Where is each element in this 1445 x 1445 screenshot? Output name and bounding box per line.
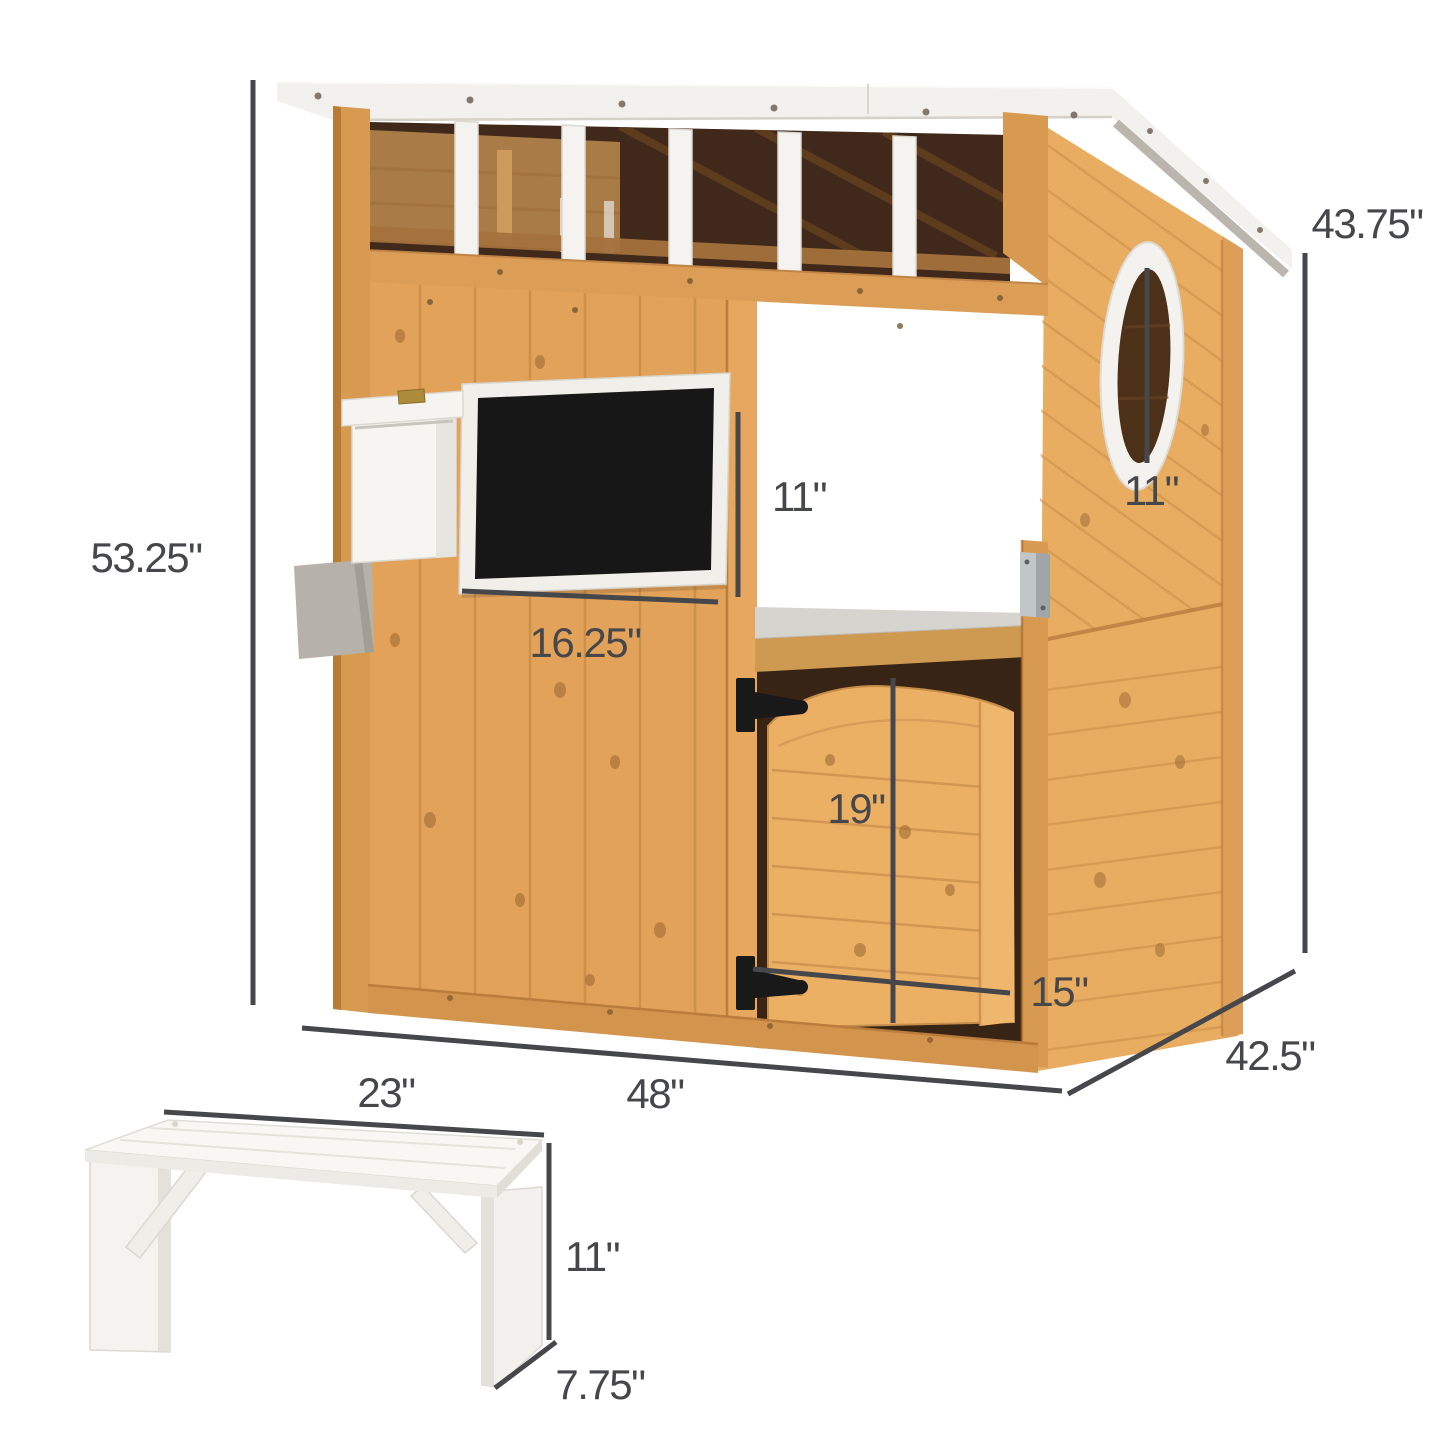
dim-label-roof-side-height: 43.75" [1311,200,1423,247]
dim-label-bench-height: 11" [565,1233,620,1280]
dim-label-bench-width: 23" [357,1069,415,1116]
interior-stud [497,150,512,245]
dim-label-depth: 42.5" [1225,1032,1315,1079]
playhouse-illustration [277,82,1292,1073]
dim-label-storage-door-width: 15" [1030,968,1088,1015]
door-stile [980,702,1014,1026]
dim-label-overall-height: 53.25" [90,534,202,581]
chalkboard-surface [475,388,714,579]
dimension-diagram: 53.25" 43.75" 11" 16.25" 11" 19" 15" 48"… [0,0,1445,1445]
back-corner-trim [1222,236,1243,1038]
bench-right-brace [411,1186,477,1253]
door-jamb [727,298,757,1046]
dim-label-front-width: 48" [626,1070,684,1117]
dim-label-serving-window-height: 11" [772,473,827,520]
product-image: 53.25" 43.75" 11" 16.25" 11" 19" 15" 48"… [0,0,1445,1445]
chalkboard [459,373,730,596]
mailbox-hinge [398,389,425,404]
storage-door [736,678,1014,1028]
dim-label-storage-door-height: 19" [827,785,885,832]
dim-label-chalkboard-width: 16.25" [529,619,641,666]
bench-illustration [85,1120,542,1387]
dim-label-porthole-diameter: 11" [1124,467,1179,514]
corner-hinge-plate [1020,552,1050,618]
dim-label-bench-depth: 7.75" [555,1361,645,1408]
